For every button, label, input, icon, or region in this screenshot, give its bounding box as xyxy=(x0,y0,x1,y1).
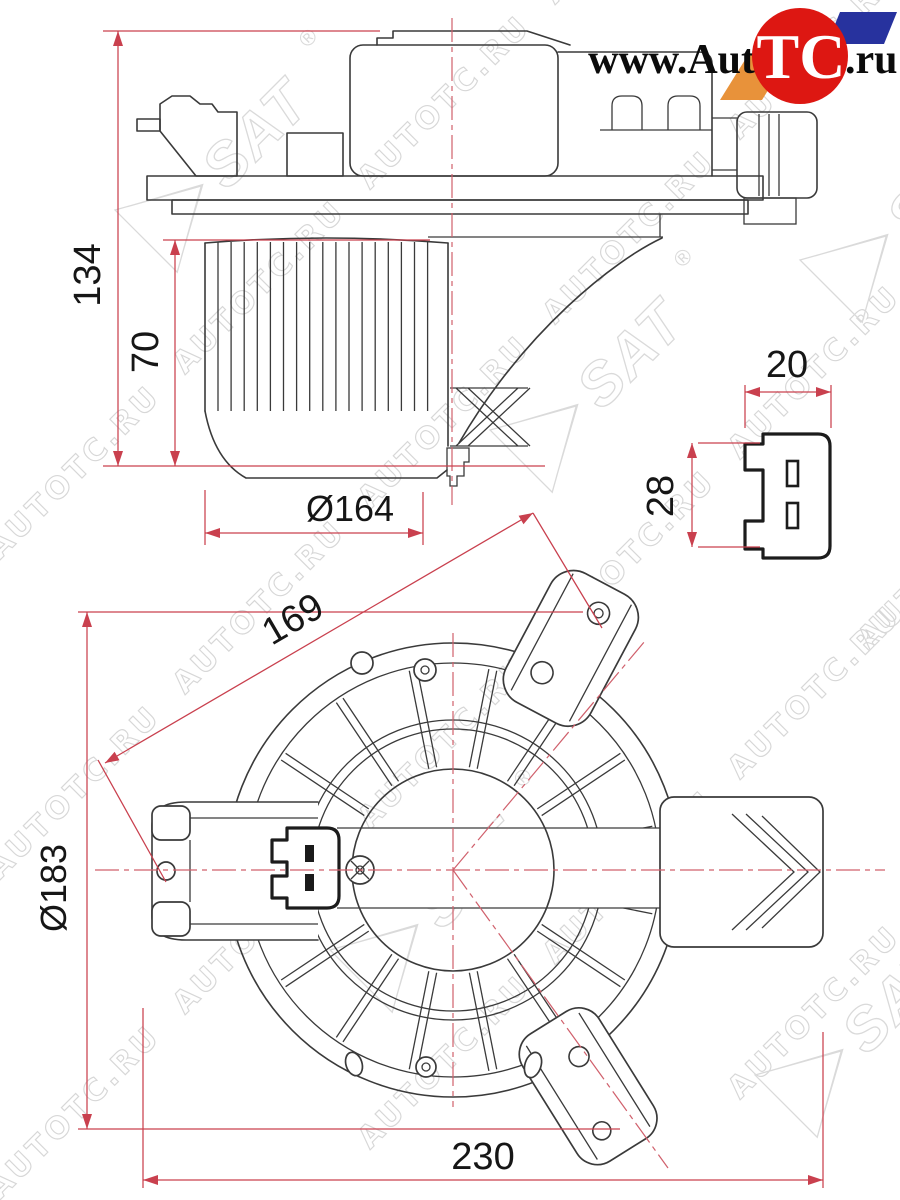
dim-flange-diameter: Ø183 xyxy=(33,844,74,932)
flange-hole xyxy=(351,652,373,674)
autotc-logo: www.Auto TC .ru xyxy=(588,8,897,104)
dim-cage-diameter: Ø164 xyxy=(306,488,394,529)
drain-nipple xyxy=(447,448,469,486)
watermark-text: AUTOTC.RU xyxy=(0,698,168,885)
watermark-text: AUTOTC.RU xyxy=(166,193,353,380)
dim-connector-height: 28 xyxy=(640,475,682,517)
dim-overall-width: 230 xyxy=(451,1136,514,1178)
pin-slot xyxy=(305,874,314,891)
bracket-pad xyxy=(152,902,190,936)
outlet-band xyxy=(337,828,700,908)
connector-body xyxy=(745,434,830,558)
watermark-text: AUTOTC.RU xyxy=(0,378,168,565)
pin-slot xyxy=(305,845,314,862)
watermark-text: AUTOTC.RU xyxy=(851,468,900,655)
dim-connector-width: 20 xyxy=(766,344,808,386)
mounting-tab-bottom xyxy=(510,999,666,1174)
mounting-tab-top xyxy=(494,561,647,735)
dim-cage-height: 70 xyxy=(125,331,167,373)
technical-drawing-page: AUTOTC.RUAUTOTC.RUAUTOTC.RUAUTOTC.RUAUTO… xyxy=(0,0,900,1200)
fan-cage-ribs xyxy=(218,242,428,411)
flange-hole xyxy=(416,1057,436,1077)
left-tab xyxy=(137,119,160,131)
watermark-text: AUTOTC.RU xyxy=(351,8,538,195)
watermark-text: AUTOTC.RU xyxy=(351,968,538,1155)
svg-text:®: ® xyxy=(668,243,697,272)
sat-brand-watermark: SAT® xyxy=(490,242,740,492)
svg-text:SAT: SAT xyxy=(874,116,900,251)
outlet-duct xyxy=(660,797,823,947)
flange-slot xyxy=(343,1050,366,1078)
terminal-bump xyxy=(612,96,642,130)
flange-hole xyxy=(414,659,436,681)
logo-text-right: .ru xyxy=(845,37,898,83)
dim-overall-height: 134 xyxy=(67,243,109,306)
motor-cap xyxy=(377,31,570,45)
terminal-bump xyxy=(668,96,700,130)
connector-lower-block xyxy=(744,198,796,224)
svg-text:®: ® xyxy=(293,23,322,52)
logo-tc-monogram: TC xyxy=(757,21,846,92)
bracket-pad xyxy=(152,806,190,840)
connector-detail-view xyxy=(745,434,830,558)
drawing-canvas: AUTOTC.RUAUTOTC.RUAUTOTC.RUAUTOTC.RUAUTO… xyxy=(0,0,900,1200)
logo-text-left: www.Auto xyxy=(588,37,776,83)
watermark-text: AUTOTC.RU xyxy=(536,0,723,11)
